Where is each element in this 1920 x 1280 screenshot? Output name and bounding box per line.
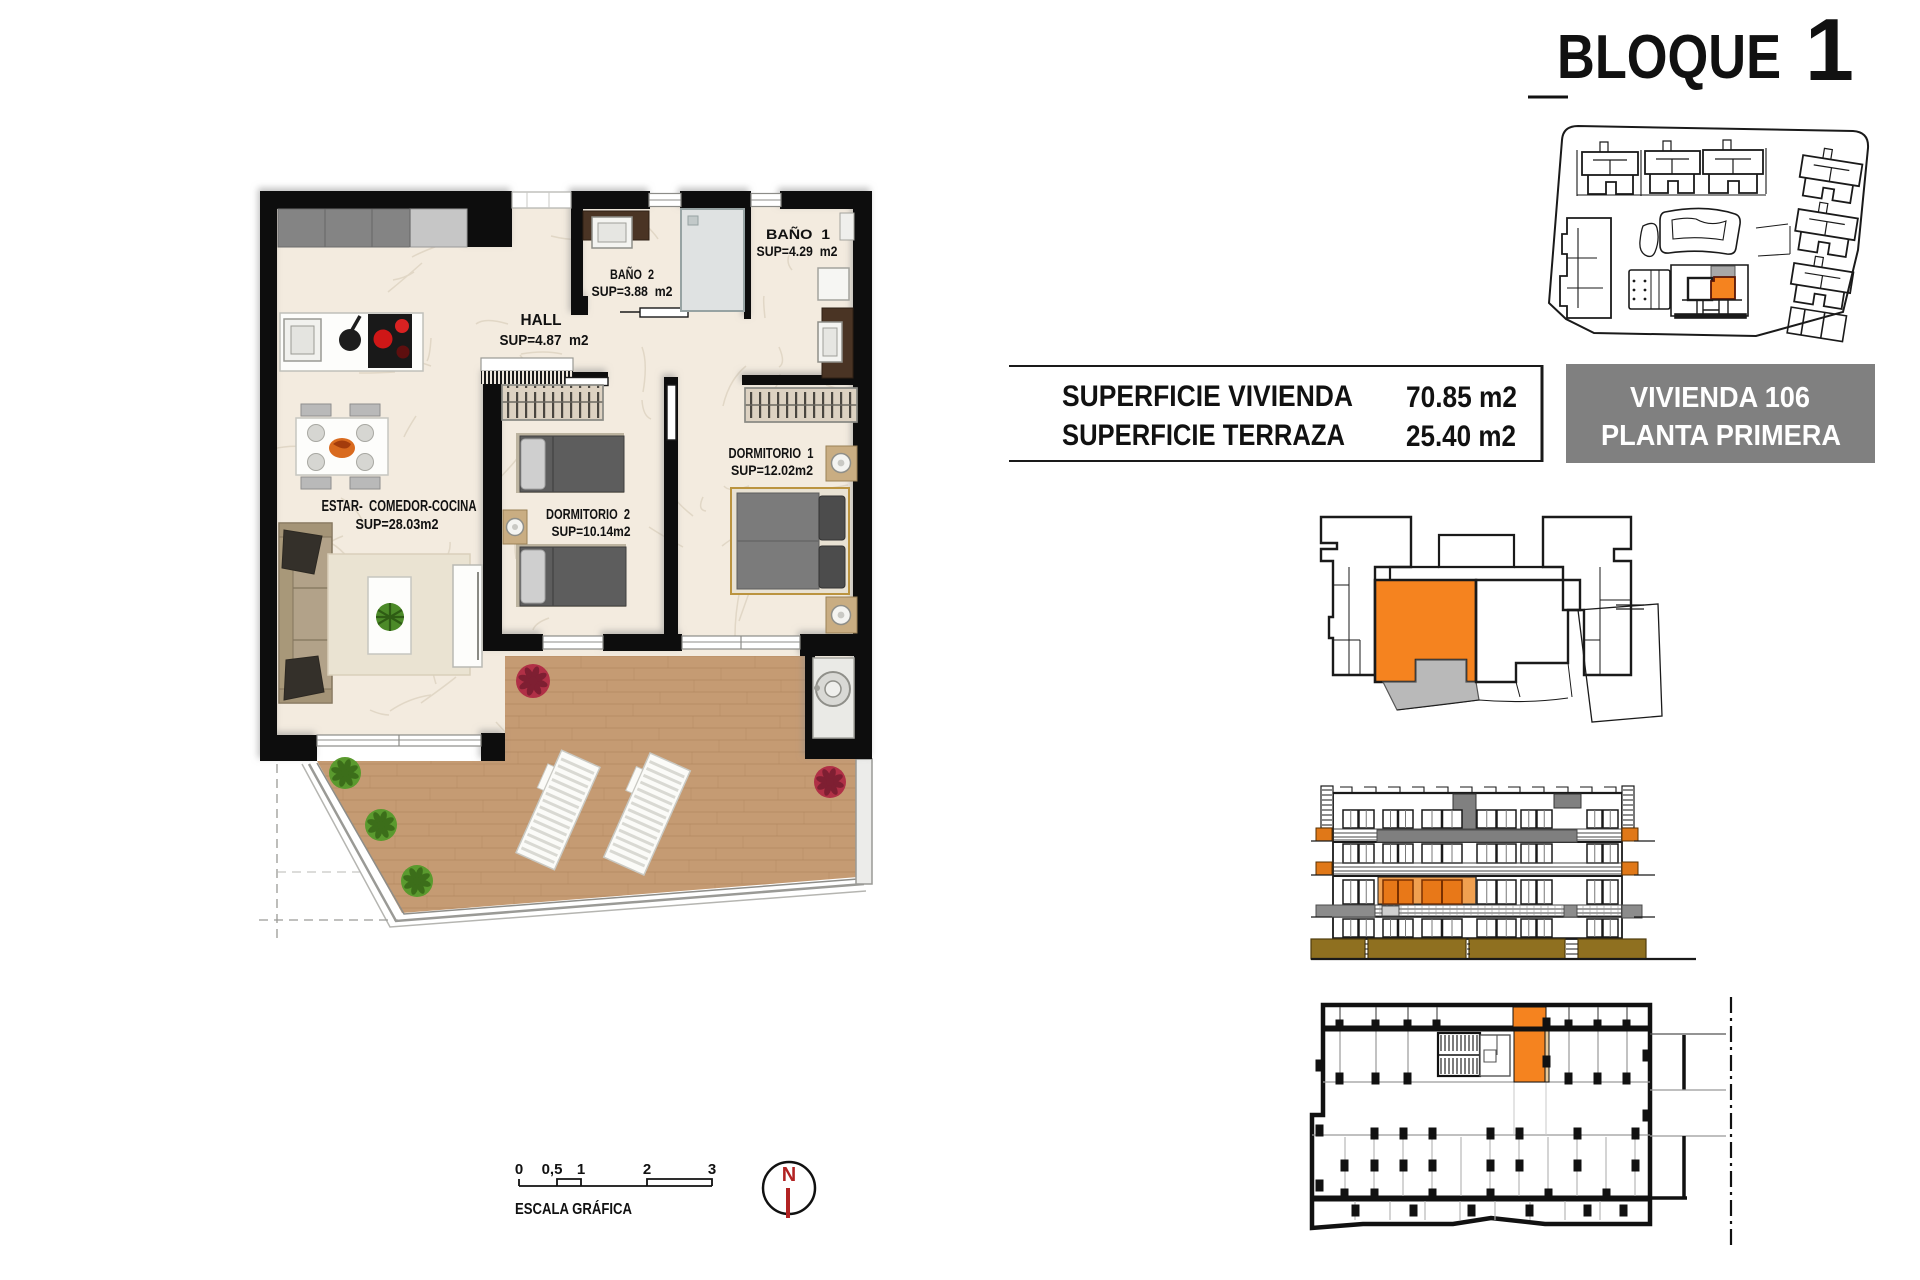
svg-text:1: 1	[1805, 0, 1854, 99]
svg-text:ESTAR- COMEDOR-COCINA: ESTAR- COMEDOR-COCINA	[322, 498, 477, 515]
svg-text:70.85 m2: 70.85 m2	[1406, 381, 1517, 414]
svg-text:VIVIENDA 106: VIVIENDA 106	[1630, 382, 1810, 414]
svg-text:SUP=10.14m2: SUP=10.14m2	[552, 523, 631, 539]
svg-text:SUP=12.02m2: SUP=12.02m2	[731, 462, 813, 478]
svg-text:SUPERFICIE VIVIENDA: SUPERFICIE VIVIENDA	[1062, 380, 1353, 413]
svg-text:N: N	[782, 1164, 796, 1186]
svg-text:BAÑO 1: BAÑO 1	[766, 225, 830, 242]
svg-text:0: 0	[515, 1161, 523, 1178]
svg-text:DORMITORIO 1: DORMITORIO 1	[729, 446, 814, 462]
svg-text:0,5: 0,5	[542, 1161, 563, 1178]
svg-text:DORMITORIO 2: DORMITORIO 2	[546, 507, 630, 523]
svg-text:SUP=3.88 m2: SUP=3.88 m2	[592, 283, 673, 299]
svg-text:SUP=4.87 m2: SUP=4.87 m2	[500, 332, 589, 349]
svg-text:HALL: HALL	[521, 312, 562, 329]
svg-text:25.40 m2: 25.40 m2	[1406, 420, 1516, 453]
svg-text:3: 3	[708, 1161, 716, 1178]
svg-text:2: 2	[643, 1161, 651, 1178]
svg-text:SUPERFICIE TERRAZA: SUPERFICIE TERRAZA	[1062, 419, 1345, 452]
svg-text:1: 1	[577, 1161, 585, 1178]
svg-text:ESCALA GRÁFICA: ESCALA GRÁFICA	[515, 1199, 632, 1218]
svg-text:PLANTA PRIMERA: PLANTA PRIMERA	[1601, 420, 1841, 452]
svg-text:BAÑO 2: BAÑO 2	[610, 265, 654, 282]
svg-text:BLOQUE: BLOQUE	[1557, 23, 1781, 92]
svg-text:SUP=28.03m2: SUP=28.03m2	[356, 517, 439, 533]
svg-text:SUP=4.29 m2: SUP=4.29 m2	[757, 243, 838, 259]
